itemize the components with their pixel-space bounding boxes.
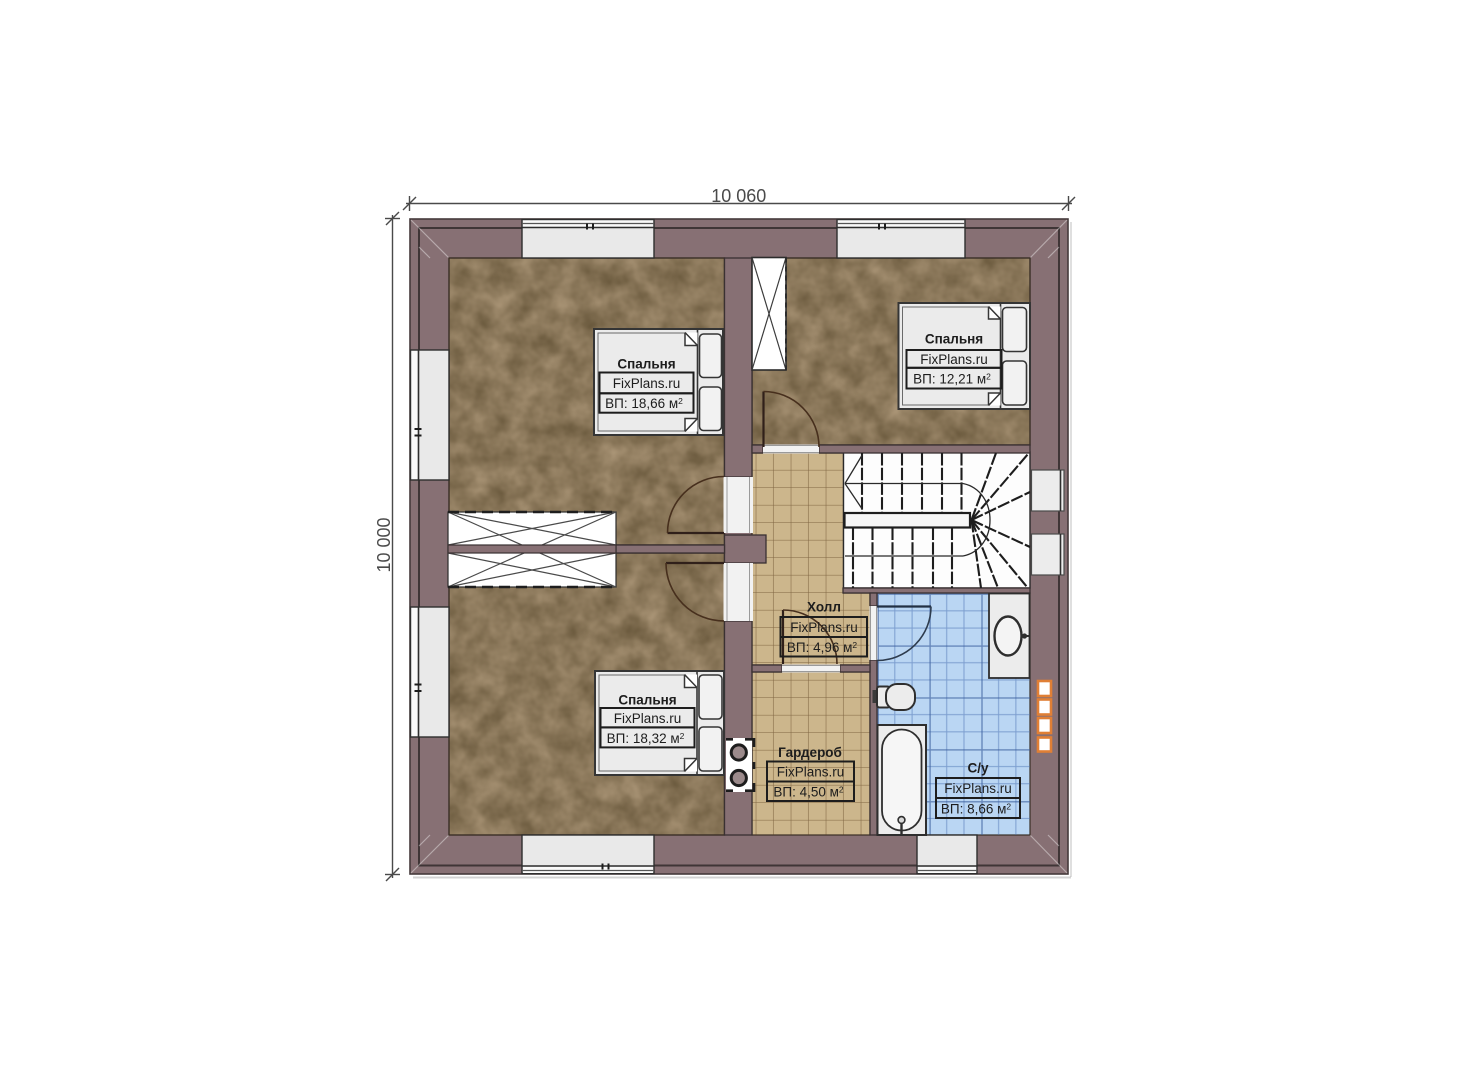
svg-text:Гардероб: Гардероб xyxy=(778,745,842,760)
svg-text:Спальня: Спальня xyxy=(618,693,676,708)
svg-text:10 000: 10 000 xyxy=(374,517,394,572)
svg-text:FixPlans.ru: FixPlans.ru xyxy=(944,781,1012,796)
svg-text:FixPlans.ru: FixPlans.ru xyxy=(790,620,858,635)
svg-text:FixPlans.ru: FixPlans.ru xyxy=(614,711,682,726)
svg-text:FixPlans.ru: FixPlans.ru xyxy=(920,352,988,367)
svg-text:ВП: 18,32 м2: ВП: 18,32 м2 xyxy=(607,731,685,746)
svg-text:ВП: 4,96 м2: ВП: 4,96 м2 xyxy=(787,640,858,655)
svg-text:FixPlans.ru: FixPlans.ru xyxy=(777,765,845,780)
svg-text:ВП: 18,66 м2: ВП: 18,66 м2 xyxy=(605,396,683,411)
svg-text:ВП: 4,50 м2: ВП: 4,50 м2 xyxy=(773,785,844,800)
svg-text:10 060: 10 060 xyxy=(711,186,766,206)
svg-text:FixPlans.ru: FixPlans.ru xyxy=(613,376,681,391)
svg-text:Спальня: Спальня xyxy=(925,332,983,347)
svg-text:ВП: 8,66 м2: ВП: 8,66 м2 xyxy=(941,802,1012,817)
svg-text:Спальня: Спальня xyxy=(617,357,675,372)
svg-text:Холл: Холл xyxy=(807,600,841,615)
svg-text:ВП: 12,21 м2: ВП: 12,21 м2 xyxy=(913,372,991,387)
svg-text:С/у: С/у xyxy=(967,761,989,776)
